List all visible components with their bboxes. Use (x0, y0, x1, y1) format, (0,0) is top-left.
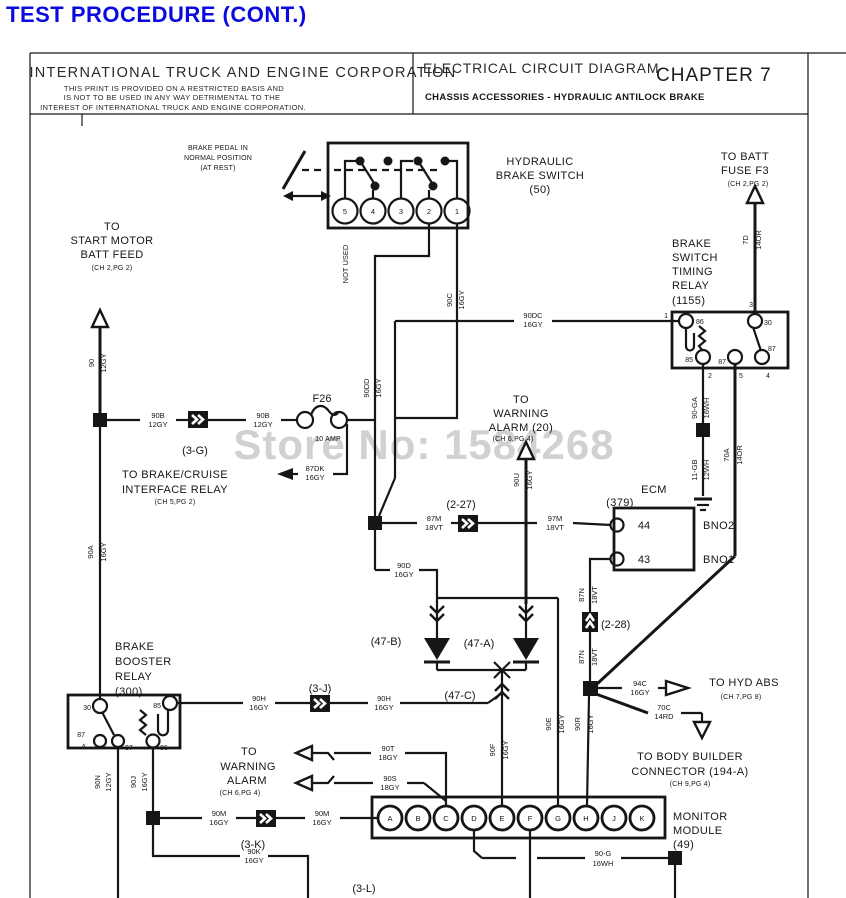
brake-cruise-2: INTERFACE RELAY (122, 484, 228, 496)
wire-90e-gauge: 16GY (557, 714, 566, 733)
wire-87dk-gauge: 16GY (305, 473, 324, 482)
body-builder-ref: (CH 9,PG 4) (670, 781, 711, 788)
wire-90g-name: 90-G (595, 849, 612, 858)
wire-97m-gauge: 18VT (546, 523, 564, 532)
switch-pin-5: 5 (343, 207, 347, 216)
not-used-label: NOT USED (341, 244, 350, 283)
warn2-arrow-top-icon (296, 746, 312, 760)
wire-11gb-name: 11-GB (690, 459, 699, 480)
module-label-1: MONITOR (673, 811, 728, 823)
wire-90c-gauge: 16GY (457, 290, 466, 309)
start-motor-3: BATT FEED (80, 249, 143, 261)
hydraulic-brake-switch: 5 4 3 2 1 BRAKE PEDAL IN NORMAL POSITION… (184, 143, 584, 283)
body-builder-2: CONNECTOR (194-A) (631, 766, 748, 778)
wire-90j-gauge: 16GY (140, 772, 149, 791)
junction-90b (93, 413, 107, 427)
wire-90h2-gauge: 16GY (374, 703, 393, 712)
warn20-2: WARNING (493, 408, 549, 420)
booster-1: BRAKE (115, 641, 154, 653)
wire-90-name: 90 (87, 359, 96, 367)
brake-cruise-arrow-icon (277, 468, 293, 480)
hyd-abs-junction: 94C 16GY TO HYD ABS (CH 7,PG 8) 70C 14RD… (573, 677, 779, 806)
wire-90n-name: 90N (93, 775, 102, 789)
junction-90g (668, 851, 682, 865)
timing-relay-1: BRAKE (672, 238, 711, 250)
timing-term-87r: 87 (768, 346, 776, 353)
batt-label-1: TO BATT (721, 151, 769, 163)
brake-cruise-1: TO BRAKE/CRUISE (122, 469, 228, 481)
warn20-3: ALARM (20) (489, 422, 554, 434)
diode-47b-label: (47-B) (371, 636, 402, 648)
brake-pedal-lever (283, 151, 305, 189)
module-pin-d: D (471, 814, 477, 823)
wire-7d-gauge: 14OR (754, 230, 763, 250)
to-batt-fuse: TO BATT FUSE F3 (CH 2,PG 2) 7D 14OR (721, 151, 769, 314)
junction-hyd-abs (583, 681, 598, 696)
wire-90b1-name: 90B (151, 411, 164, 420)
body-builder-1: TO BODY BUILDER (637, 751, 743, 763)
timing-relay-2: SWITCH (672, 252, 718, 264)
module-pin-e: E (499, 814, 504, 823)
wire-90f-gauge: 16GY (501, 740, 510, 759)
wire-90t-name: 90T (382, 744, 395, 753)
connector-3g-icon (188, 411, 208, 428)
module-pin-f: F (528, 814, 533, 823)
module-pin-c: C (443, 814, 449, 823)
wire-90dc-gauge: 16GY (523, 320, 542, 329)
wire-90-gauge: 12GY (99, 353, 108, 372)
module-pin-h: H (583, 814, 588, 823)
wire-90k-gauge: 16GY (244, 856, 263, 865)
warn2-3: ALARM (227, 775, 267, 787)
wire-90h1-name: 90H (252, 694, 266, 703)
timing-pin-4: 4 (766, 373, 770, 380)
restriction-line-1: THIS PRINT IS PROVIDED ON A RESTRICTED B… (64, 84, 284, 93)
wire-90b2-gauge: 12GY (253, 420, 272, 429)
wire-87n2-name: 87N (577, 650, 586, 664)
wire-90b2-name: 90B (256, 411, 269, 420)
booster-term-30: 30 (83, 705, 91, 712)
90m-run: 90M 16GY (3-K) 90M 16GY (160, 809, 378, 851)
start-motor-ref: (CH 2,PG 2) (92, 265, 133, 272)
wire-90s-name: 90S (383, 774, 396, 783)
diode-47b-icon (424, 638, 450, 660)
wire-90h2-name: 90H (377, 694, 391, 703)
wire-97m-name: 97M (548, 514, 563, 523)
wire-87dk-name: 87DK (306, 464, 325, 473)
wire-90f-name: 90F (488, 743, 497, 756)
booster-term-87: 87 (77, 732, 85, 739)
wire-70a-gauge: 14OR (735, 445, 744, 465)
ecm-name: ECM (641, 484, 667, 496)
wire-90dd-gauge: 16GY (374, 378, 383, 397)
timing-term-85: 85 (685, 357, 693, 364)
pedal-note-2: NORMAL POSITION (184, 155, 252, 162)
connector-3k-icon (256, 810, 276, 827)
connector-227-icon (458, 515, 478, 532)
fuse-name: F26 (313, 393, 332, 405)
timing-term-87c: 87 (718, 359, 726, 366)
module-pin-b: B (415, 814, 420, 823)
module-label-2: MODULE (673, 825, 722, 837)
switch-pin-2: 2 (427, 207, 431, 216)
wire-90dd-name: 90DD (362, 378, 371, 398)
booster-relay-arm (102, 712, 114, 735)
wire-90c-name: 90C (445, 293, 454, 307)
wire-90h1-gauge: 16GY (249, 703, 268, 712)
warning-alarm-20: TO WARNING ALARM (20) (CH 6,PG 4) 90U 16… (489, 394, 554, 604)
switch-title-2: BRAKE SWITCH (496, 170, 585, 182)
connector-3k-label: (3-K) (241, 839, 265, 851)
booster-3: RELAY (115, 671, 153, 683)
timing-pin-2: 2 (708, 373, 712, 380)
timing-relay-5: (1155) (672, 295, 705, 307)
wire-87m-name: 87M (427, 514, 442, 523)
wire-90d-gauge: 16GY (394, 570, 413, 579)
junction-87m (368, 516, 382, 530)
wire-70c-name: 70C (657, 703, 671, 712)
diode-47a-icon (513, 638, 539, 660)
ecm-pin-44: 44 (638, 520, 650, 532)
wire-90e-name: 90E (544, 717, 553, 730)
connector-228-label: (2-28) (601, 619, 630, 631)
timing-term-30: 30 (764, 320, 772, 327)
pedal-note-1: BRAKE PEDAL IN (188, 145, 248, 152)
booster-2: BOOSTER (115, 656, 172, 668)
warn2-2: WARNING (220, 761, 276, 773)
switch-pin-3: 3 (399, 207, 403, 216)
body-builder-arrow-icon (694, 722, 710, 738)
restriction-line-2: IS NOT TO BE USED IN ANY WAY DETRIMENTAL… (64, 93, 281, 102)
wire-90b1-gauge: 12GY (148, 420, 167, 429)
hyd-abs-ref: (CH 7,PG 8) (721, 694, 762, 701)
connector-3j-icon (310, 695, 330, 712)
brake-cruise-ref: (CH 5,PG 2) (155, 499, 196, 506)
wire-90u-gauge: 16GY (525, 470, 534, 489)
brake-booster-relay: BRAKE BOOSTER RELAY (300) 30 85 87 A 87 … (68, 427, 376, 898)
switch-title-1: HYDRAULIC (506, 156, 573, 168)
batt-label-2: FUSE F3 (721, 165, 769, 177)
wire-90m2-name: 90M (315, 809, 330, 818)
junction-90m (146, 811, 160, 825)
warn2-1: TO (241, 746, 257, 758)
wire-90m1-name: 90M (212, 809, 227, 818)
wire-90t-gauge: 18GY (378, 753, 397, 762)
warn20-1: TO (513, 394, 529, 406)
module-label-3: (49) (673, 839, 694, 851)
circuit-diagram: Store No: 1584268 INTERNATIONAL TRUCK AN… (0, 0, 846, 898)
connector-3j-label: (3-J) (309, 683, 332, 695)
wire-90j-name: 90J (129, 776, 138, 788)
wire-90r-gauge: 16GY (586, 714, 595, 733)
watermark-text: Store No: 1584268 (233, 421, 614, 468)
brake-switch-timing-relay: BRAKE SWITCH TIMING RELAY (1155) 86 30 8… (597, 238, 788, 684)
wire-90d-name: 90D (397, 561, 411, 570)
wire-87n2-gauge: 18VT (590, 648, 599, 666)
page-title: TEST PROCEDURE (CONT.) (6, 2, 307, 28)
booster-term-87b: 87 (125, 745, 133, 752)
wire-90m2-gauge: 16GY (312, 818, 331, 827)
fuse-rating: 10 AMP (315, 436, 341, 443)
wire-87m-gauge: 18VT (425, 523, 443, 532)
start-motor-feed: TO START MOTOR BATT FEED (CH 2,PG 2) 90 … (70, 221, 153, 427)
booster-term-86: 86 (160, 745, 168, 752)
start-motor-2: START MOTOR (70, 235, 153, 247)
diagram-type: ELECTRICAL CIRCUIT DIAGRAM (423, 60, 659, 76)
diode-47a-label: (47-A) (464, 638, 495, 650)
ecm-run: 87M 18VT (2-27) 97M 18VT ECM (379) 44 43… (368, 484, 735, 681)
restriction-line-3: INTEREST OF INTERNATIONAL TRUCK AND ENGI… (40, 103, 306, 112)
switch-pin-4: 4 (371, 207, 375, 216)
wire-94c-name: 94C (633, 679, 647, 688)
module-pin-a: A (387, 814, 392, 823)
wire-90a-gauge: 16GY (99, 542, 108, 561)
ecm-pin-43: 43 (638, 554, 650, 566)
wire-90ga-gauge: 16WH (702, 398, 711, 419)
company-name: INTERNATIONAL TRUCK AND ENGINE CORPORATI… (29, 65, 456, 81)
wire-90dc-name: 90DC (523, 311, 543, 320)
diode-47c-label: (47-C) (444, 690, 475, 702)
connector-3l-label: (3-L) (352, 883, 375, 895)
switch-output-wires: 90C 16GY 90DD 16GY 90DC 16GY (362, 224, 679, 516)
timing-relay-arm (753, 327, 761, 351)
batt-arrow-icon (747, 186, 763, 203)
start-motor-1: TO (104, 221, 120, 233)
schematic-page: TEST PROCEDURE (CONT.) Store No: 1584268… (0, 0, 846, 898)
wire-90ga-name: 90-GA (690, 397, 699, 419)
wire-90g-gauge: 16WH (593, 859, 614, 868)
switch-title-3: (50) (529, 184, 550, 196)
timing-relay-3: TIMING (672, 266, 713, 278)
module-pin-j: J (612, 814, 616, 823)
start-motor-arrow-icon (92, 310, 108, 327)
chapter-label: CHAPTER 7 (656, 65, 772, 86)
warn2-ref: (CH 6,PG 4) (220, 790, 261, 797)
switch-pin-1: 1 (455, 207, 459, 216)
wire-94c-gauge: 16GY (630, 688, 649, 697)
wire-90s-gauge: 18GY (380, 783, 399, 792)
connector-228-icon (582, 612, 598, 632)
section-label: CHASSIS ACCESSORIES - HYDRAULIC ANTILOCK… (425, 92, 705, 103)
monitor-module: A B C D E F G H J K MONITOR MODULE (49) … (372, 797, 728, 898)
timing-pin-1: 1 (664, 313, 668, 320)
wire-90m1-gauge: 16GY (209, 818, 228, 827)
pedal-note-3: (AT REST) (200, 165, 235, 172)
wire-87n1-name: 87N (577, 588, 586, 602)
ground-icon (694, 499, 712, 510)
timing-pin-3: 3 (749, 302, 753, 309)
connector-227-label: (2-27) (446, 499, 475, 511)
wire-90a-name: 90A (86, 545, 95, 558)
junction-90ga (696, 423, 710, 437)
wire-87n1-gauge: 18VT (590, 586, 599, 604)
module-pin-k: K (639, 814, 644, 823)
wire-90r-name: 90R (573, 717, 582, 731)
hyd-abs-label: TO HYD ABS (709, 677, 779, 689)
batt-ref: (CH 2,PG 2) (728, 181, 769, 188)
ecm-bno2: BNO2 (703, 520, 735, 532)
booster-term-a: A (81, 744, 86, 751)
connector-3g-label: (3-G) (182, 445, 208, 457)
wire-90n-gauge: 12GY (104, 772, 113, 791)
booster-term-85: 85 (153, 703, 161, 710)
timing-pin-5: 5 (739, 373, 743, 380)
wire-11gb-gauge: 12WH (702, 460, 711, 481)
warn2-arrow-bottom-icon (296, 776, 312, 790)
wire-70a-name: 70A (722, 448, 731, 461)
hyd-abs-arrow-icon (666, 681, 688, 695)
ecm-bno1: BNO1 (703, 554, 735, 566)
wire-70c-gauge: 14RD (654, 712, 674, 721)
timing-relay-4: RELAY (672, 280, 710, 292)
module-pin-g: G (555, 814, 561, 823)
wire-90u-name: 90U (512, 473, 521, 487)
wire-7d-name: 7D (741, 235, 750, 245)
timing-term-86: 86 (696, 319, 704, 326)
diode-network: 90D 16GY (47-B) (47-A) (47-C) (371, 530, 566, 806)
